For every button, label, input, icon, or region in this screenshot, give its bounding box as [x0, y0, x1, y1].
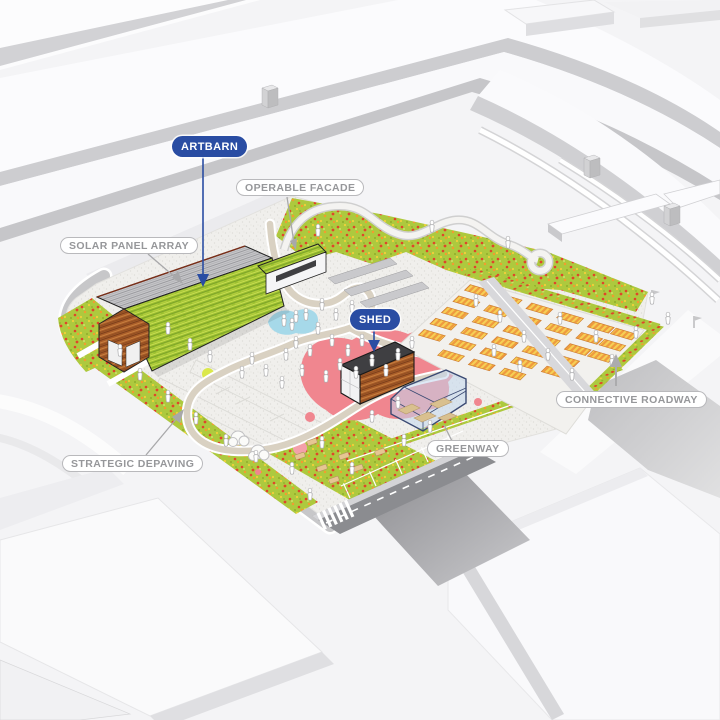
label-solar-panel-array: SOLAR PANEL ARRAY — [60, 237, 198, 254]
building-bottom-left — [0, 468, 334, 720]
label-artbarn: ARTBARN — [172, 136, 247, 157]
label-connective-roadway: CONNECTIVE ROADWAY — [556, 391, 707, 408]
label-greenway: GREENWAY — [427, 440, 509, 457]
site-illustration — [0, 0, 720, 720]
label-operable-facade: OPERABLE FACADE — [236, 179, 364, 196]
label-shed: SHED — [350, 309, 400, 330]
axonometric-site-diagram: ARTBARN OPERABLE FACADE SOLAR PANEL ARRA… — [0, 0, 720, 720]
label-strategic-depaving: STRATEGIC DEPAVING — [62, 455, 203, 472]
depaving-leader — [146, 418, 177, 455]
